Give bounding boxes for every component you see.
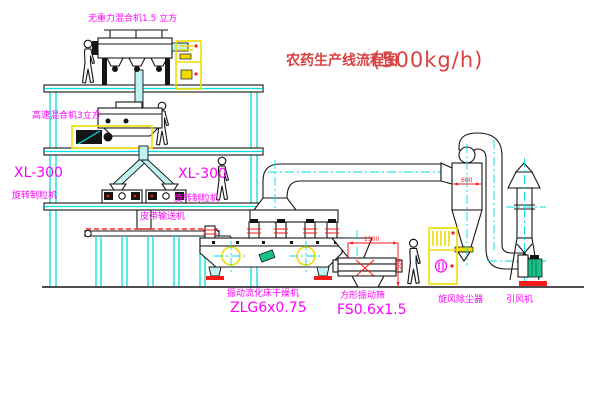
dryer-name-label: 振动流化床干燥机: [227, 287, 299, 299]
y-pipe: [110, 160, 178, 190]
high-speed-mixer-label: 高速混合机3立方: [32, 109, 101, 121]
granulator-left-name-label: 旋转制粒机: [12, 189, 57, 201]
fan-graphic: [518, 255, 547, 286]
diagram-title-capacity: (500kg/h): [372, 48, 483, 72]
gravity-mixer-label: 无重力混合机1.5 立方: [88, 12, 177, 24]
sieve-name-label: 方形振动筛: [340, 289, 385, 301]
process-flow-diagram: 无重力混合机1.5 立方 农药生产线流程图 (500kg/h) 高速混合机3立方…: [0, 0, 600, 403]
cyclone-width-dim: 600: [461, 177, 473, 184]
sieve-length-dim: 1500: [364, 236, 379, 243]
sieve-model-label: FS0.6x1.5: [337, 302, 407, 318]
control-cabinet-2: [429, 228, 457, 284]
granulator-center-model-label: XL-300: [178, 166, 227, 182]
belt-conveyor-label: 皮带输送机: [140, 210, 185, 222]
granulator-center-name-label: 旋转制粒机: [174, 192, 219, 204]
cyclone-graphic: [441, 144, 482, 266]
cad-drawing-canvas: 无重力混合机1.5 立方 农药生产线流程图 (500kg/h) 高速混合机3立方…: [0, 0, 600, 403]
dryer-model-label: ZLG6x0.75: [230, 300, 307, 316]
sieve-height-dim: 500: [396, 258, 403, 270]
gravity-mixer-graphic: [92, 30, 188, 108]
cyclone-label: 旋风除尘器: [438, 293, 483, 305]
dryer-spring-mounts: [206, 267, 332, 280]
granulator-left-graphic: [102, 190, 142, 203]
granulator-left-model-label: XL-300: [14, 165, 63, 181]
fan-label: 引风机: [506, 293, 533, 305]
person-figure: [408, 239, 421, 284]
